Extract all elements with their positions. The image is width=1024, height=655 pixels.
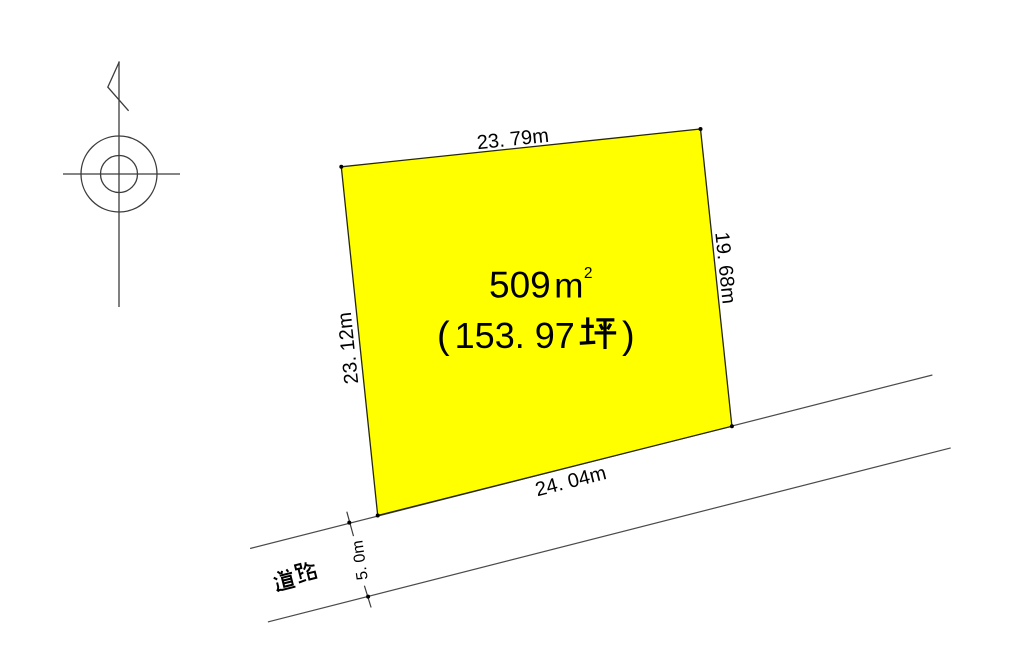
svg-text:(153. 97: (153. 97: [437, 315, 575, 357]
svg-text:509m2: 509m2: [489, 265, 593, 306]
svg-text:): ): [622, 315, 635, 357]
